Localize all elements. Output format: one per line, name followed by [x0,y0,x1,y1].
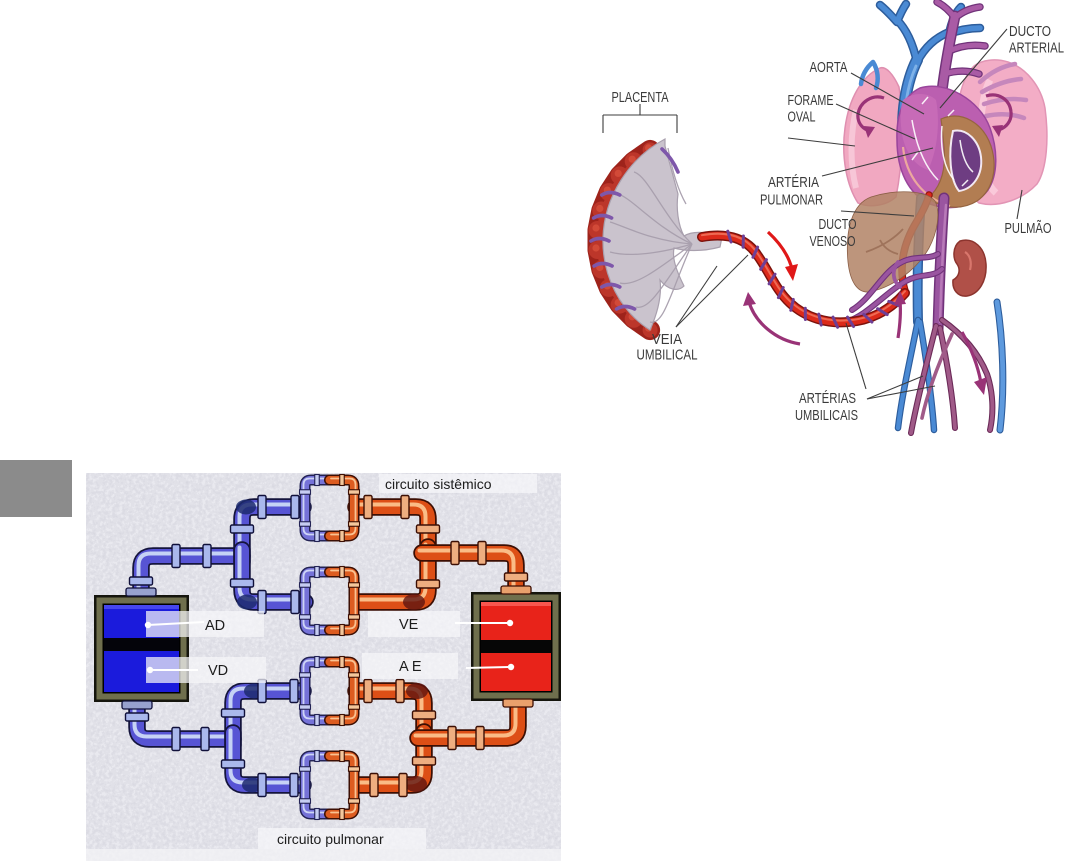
svg-text:AD: AD [205,618,225,634]
svg-text:circuito pulmonar: circuito pulmonar [277,831,384,847]
svg-text:PULMONAR: PULMONAR [760,192,823,209]
svg-text:VEIA: VEIA [652,331,682,348]
svg-text:UMBILICAIS: UMBILICAIS [795,407,858,424]
svg-text:VENOSO: VENOSO [810,233,856,250]
svg-text:ARTÉRIA: ARTÉRIA [768,174,819,191]
svg-text:DUCTO: DUCTO [819,216,857,233]
svg-text:VE: VE [399,617,419,633]
svg-text:VD: VD [208,663,228,679]
svg-text:circuito sistêmico: circuito sistêmico [385,476,492,492]
svg-text:OVAL: OVAL [788,109,816,126]
svg-text:UMBILICAL: UMBILICAL [637,347,698,364]
svg-text:ARTÉRIAS: ARTÉRIAS [799,390,856,407]
svg-text:A E: A E [399,659,422,675]
svg-text:AORTA: AORTA [810,59,848,76]
svg-text:PLACENTA: PLACENTA [612,89,669,106]
svg-text:DUCTO: DUCTO [1009,23,1051,40]
svg-text:PULMÃO: PULMÃO [1005,220,1052,237]
svg-text:ARTERIAL: ARTERIAL [1009,40,1064,57]
svg-text:FORAME: FORAME [788,92,834,109]
